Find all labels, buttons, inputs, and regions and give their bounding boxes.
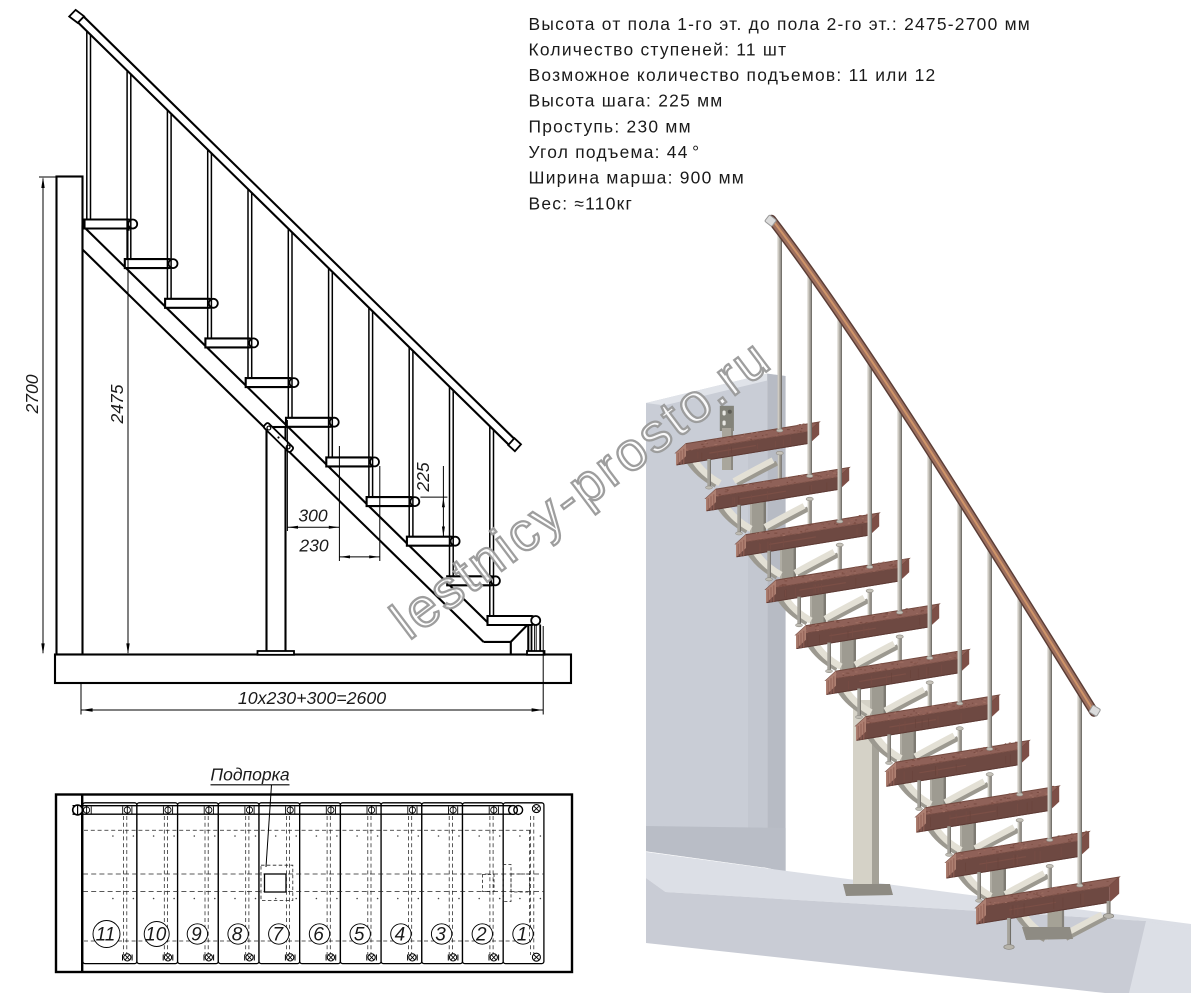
svg-text:2475: 2475 [107, 384, 127, 424]
svg-text:230: 230 [298, 536, 328, 556]
svg-text:2: 2 [475, 925, 487, 946]
svg-text:10: 10 [145, 925, 167, 946]
svg-text:10x230+300=2600: 10x230+300=2600 [238, 688, 386, 708]
svg-text:Возможное количество подъемов:: Возможное количество подъемов: 11 или 12 [529, 65, 937, 85]
svg-text:6: 6 [313, 925, 324, 946]
svg-text:Проступь: 230 мм: Проступь: 230 мм [529, 116, 692, 136]
svg-text:300: 300 [298, 506, 327, 526]
svg-text:4: 4 [395, 925, 406, 946]
svg-text:9: 9 [191, 925, 202, 946]
svg-text:225: 225 [413, 462, 433, 492]
svg-text:Высота шага: 225 мм: Высота шага: 225 мм [529, 91, 724, 111]
svg-text:Ширина марша: 900 мм: Ширина марша: 900 мм [529, 168, 746, 188]
svg-text:7: 7 [273, 925, 285, 946]
svg-text:Количество ступеней: 11 шт: Количество ступеней: 11 шт [529, 40, 788, 60]
svg-text:3: 3 [435, 925, 446, 946]
svg-text:Угол подъема: 44 °: Угол подъема: 44 ° [529, 142, 700, 162]
svg-text:5: 5 [354, 925, 365, 946]
svg-text:11: 11 [96, 925, 116, 946]
svg-text:Подпорка: Подпорка [210, 765, 289, 785]
svg-text:Вес: ≈110кг: Вес: ≈110кг [529, 193, 634, 213]
svg-text:2700: 2700 [22, 374, 42, 414]
svg-text:8: 8 [232, 925, 243, 946]
svg-text:Высота от пола 1-го эт. до пол: Высота от пола 1-го эт. до пола 2-го эт.… [529, 14, 1031, 34]
svg-text:1: 1 [517, 925, 528, 946]
